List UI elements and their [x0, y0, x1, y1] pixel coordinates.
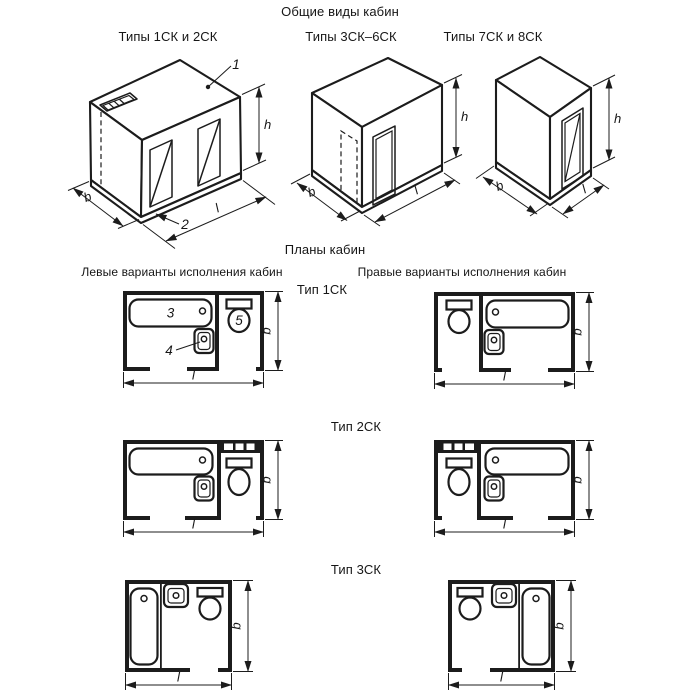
title-general-views: Общие виды кабин [190, 4, 490, 19]
svg-text:h: h [264, 117, 271, 132]
dim-height: h [593, 75, 621, 168]
svg-text:l: l [213, 200, 223, 215]
isometric-types-3-6: h b l [285, 55, 480, 233]
svg-text:b: b [493, 177, 505, 194]
callout-bathtub: 3 [167, 306, 175, 321]
plan-1sk-left: 3 4 5 [118, 286, 303, 398]
plan-2sk-left [118, 435, 303, 547]
isometric-types-7-8: h b l [468, 55, 653, 227]
isometric-types-1-2: 1 2 h b l [55, 50, 283, 250]
svg-text:b: b [305, 183, 317, 200]
svg-text:2: 2 [180, 217, 189, 232]
dim-height: h [444, 75, 468, 164]
header-types-7-8: Типы 7СК и 8СК [343, 29, 643, 44]
plan-3sk-right [443, 575, 615, 700]
svg-text:1: 1 [232, 57, 240, 72]
svg-text:4: 4 [165, 343, 173, 358]
callout-toilet: 5 [235, 313, 243, 328]
type-label-2sk: Тип 2СК [206, 419, 506, 434]
svg-text:b: b [81, 188, 93, 205]
plan-3sk-left [120, 575, 292, 700]
plan-2sk-right [429, 435, 614, 547]
svg-text:h: h [614, 111, 621, 126]
drawing-sheet: l b l b Общие виды кабин Типы 1СК и 2СК … [0, 0, 700, 700]
callout-roof-panel: 1 [206, 57, 240, 89]
header-right-variants: Правые варианты исполнения кабин [312, 265, 612, 279]
plan-1sk-right [429, 287, 614, 399]
svg-text:l: l [579, 181, 589, 196]
callout-floor-panel: 2 [156, 214, 189, 232]
dim-height: h [242, 84, 271, 171]
header-left-variants: Левые варианты исполнения кабин [32, 265, 332, 279]
